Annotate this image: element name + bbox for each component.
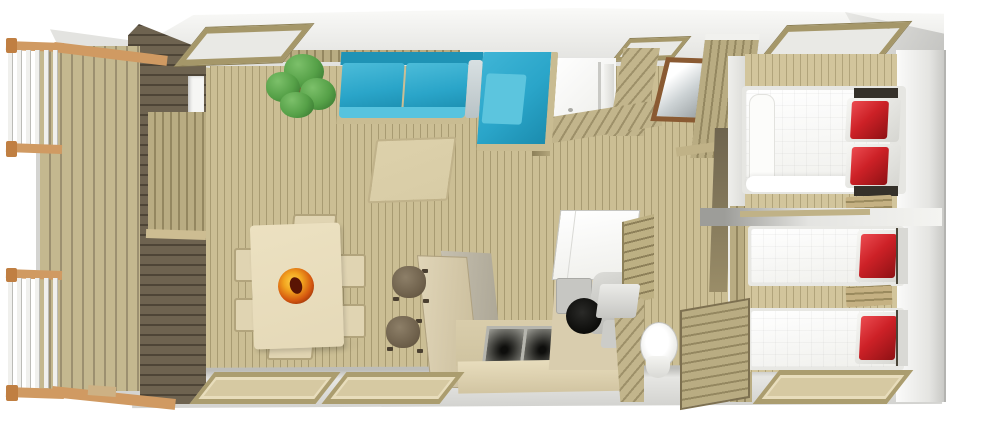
fridge-door-line [567,211,576,279]
divider-wood-edge [740,209,870,217]
railing-post [6,38,17,53]
twin-room-wardrobe [680,298,750,410]
railing-bottom-balusters [8,278,58,388]
bar-stool [392,266,426,298]
fruit-bowl [277,267,314,304]
wood-step [88,385,117,397]
headboard-strip [854,186,898,196]
railing-post [6,385,18,401]
headboard-strip [854,88,898,98]
railing-post [6,141,17,157]
bar-stool [386,316,420,348]
sofa-cushion [339,63,404,109]
railing-top [6,38,172,164]
blue-corner-sofa [333,52,552,148]
red-pillow [850,101,889,139]
railing-top-ext-bar [53,42,167,66]
dining-table [250,222,344,349]
sofa-cushion [403,63,468,109]
railing-post [6,268,17,282]
bed-bolster [749,94,775,188]
dining-chair [338,254,366,288]
headboard [896,310,908,366]
dining-set [234,214,368,360]
bowl-center [288,276,304,296]
sofa-corner-chaise [476,52,558,151]
sofa-seat-edge [339,107,466,118]
red-pillow [850,147,889,185]
beige-rug [367,137,456,204]
shower-drain [568,108,573,112]
window-living-1 [189,372,340,404]
cistern [596,284,641,318]
window-bedroom-twin [753,370,914,404]
plant-foliage [280,92,314,118]
window-living-2 [321,372,464,404]
railing-top-balusters [8,50,58,148]
floorplan [0,0,1000,426]
chaise-seat [482,73,527,124]
railing-bottom [6,268,182,404]
headboard [896,228,908,284]
red-pillow [859,234,897,278]
bedroom-divider-wall [700,208,942,226]
green-plant [266,52,338,120]
red-pillow [859,316,897,360]
wood-shelf [846,285,893,307]
